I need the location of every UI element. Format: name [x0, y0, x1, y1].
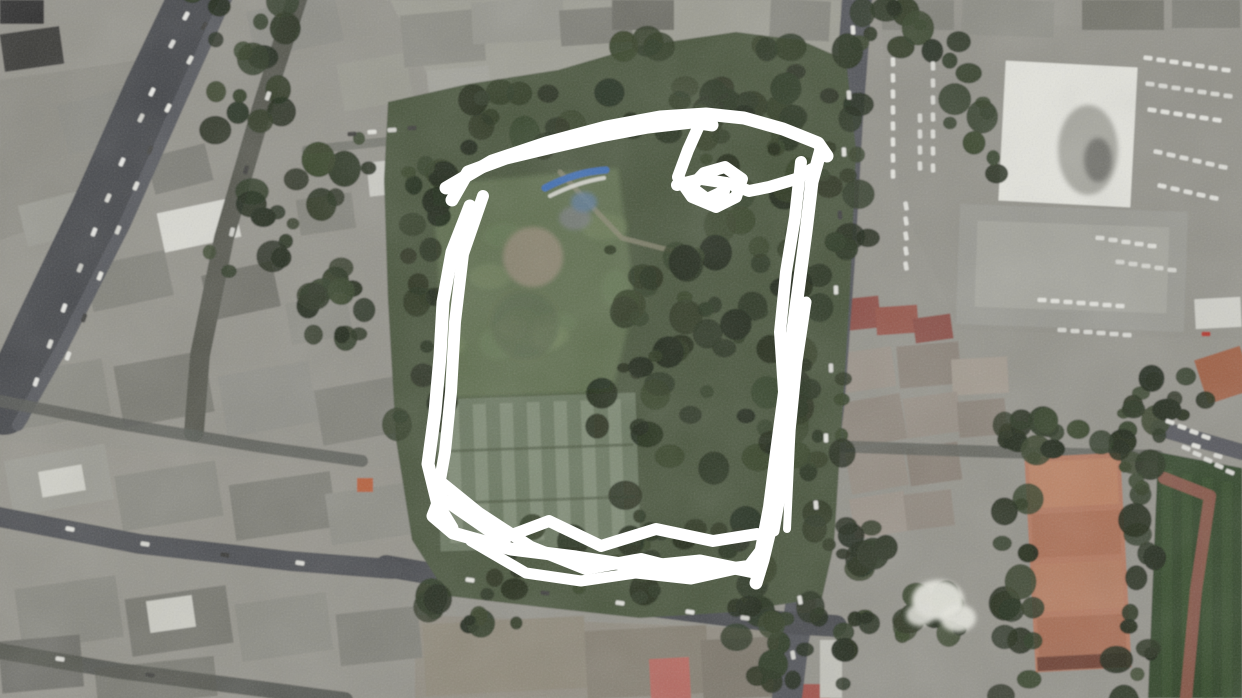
- satellite-map-image: [0, 0, 1242, 698]
- grain-overlay: [0, 0, 1242, 698]
- map-canvas: [0, 0, 1242, 698]
